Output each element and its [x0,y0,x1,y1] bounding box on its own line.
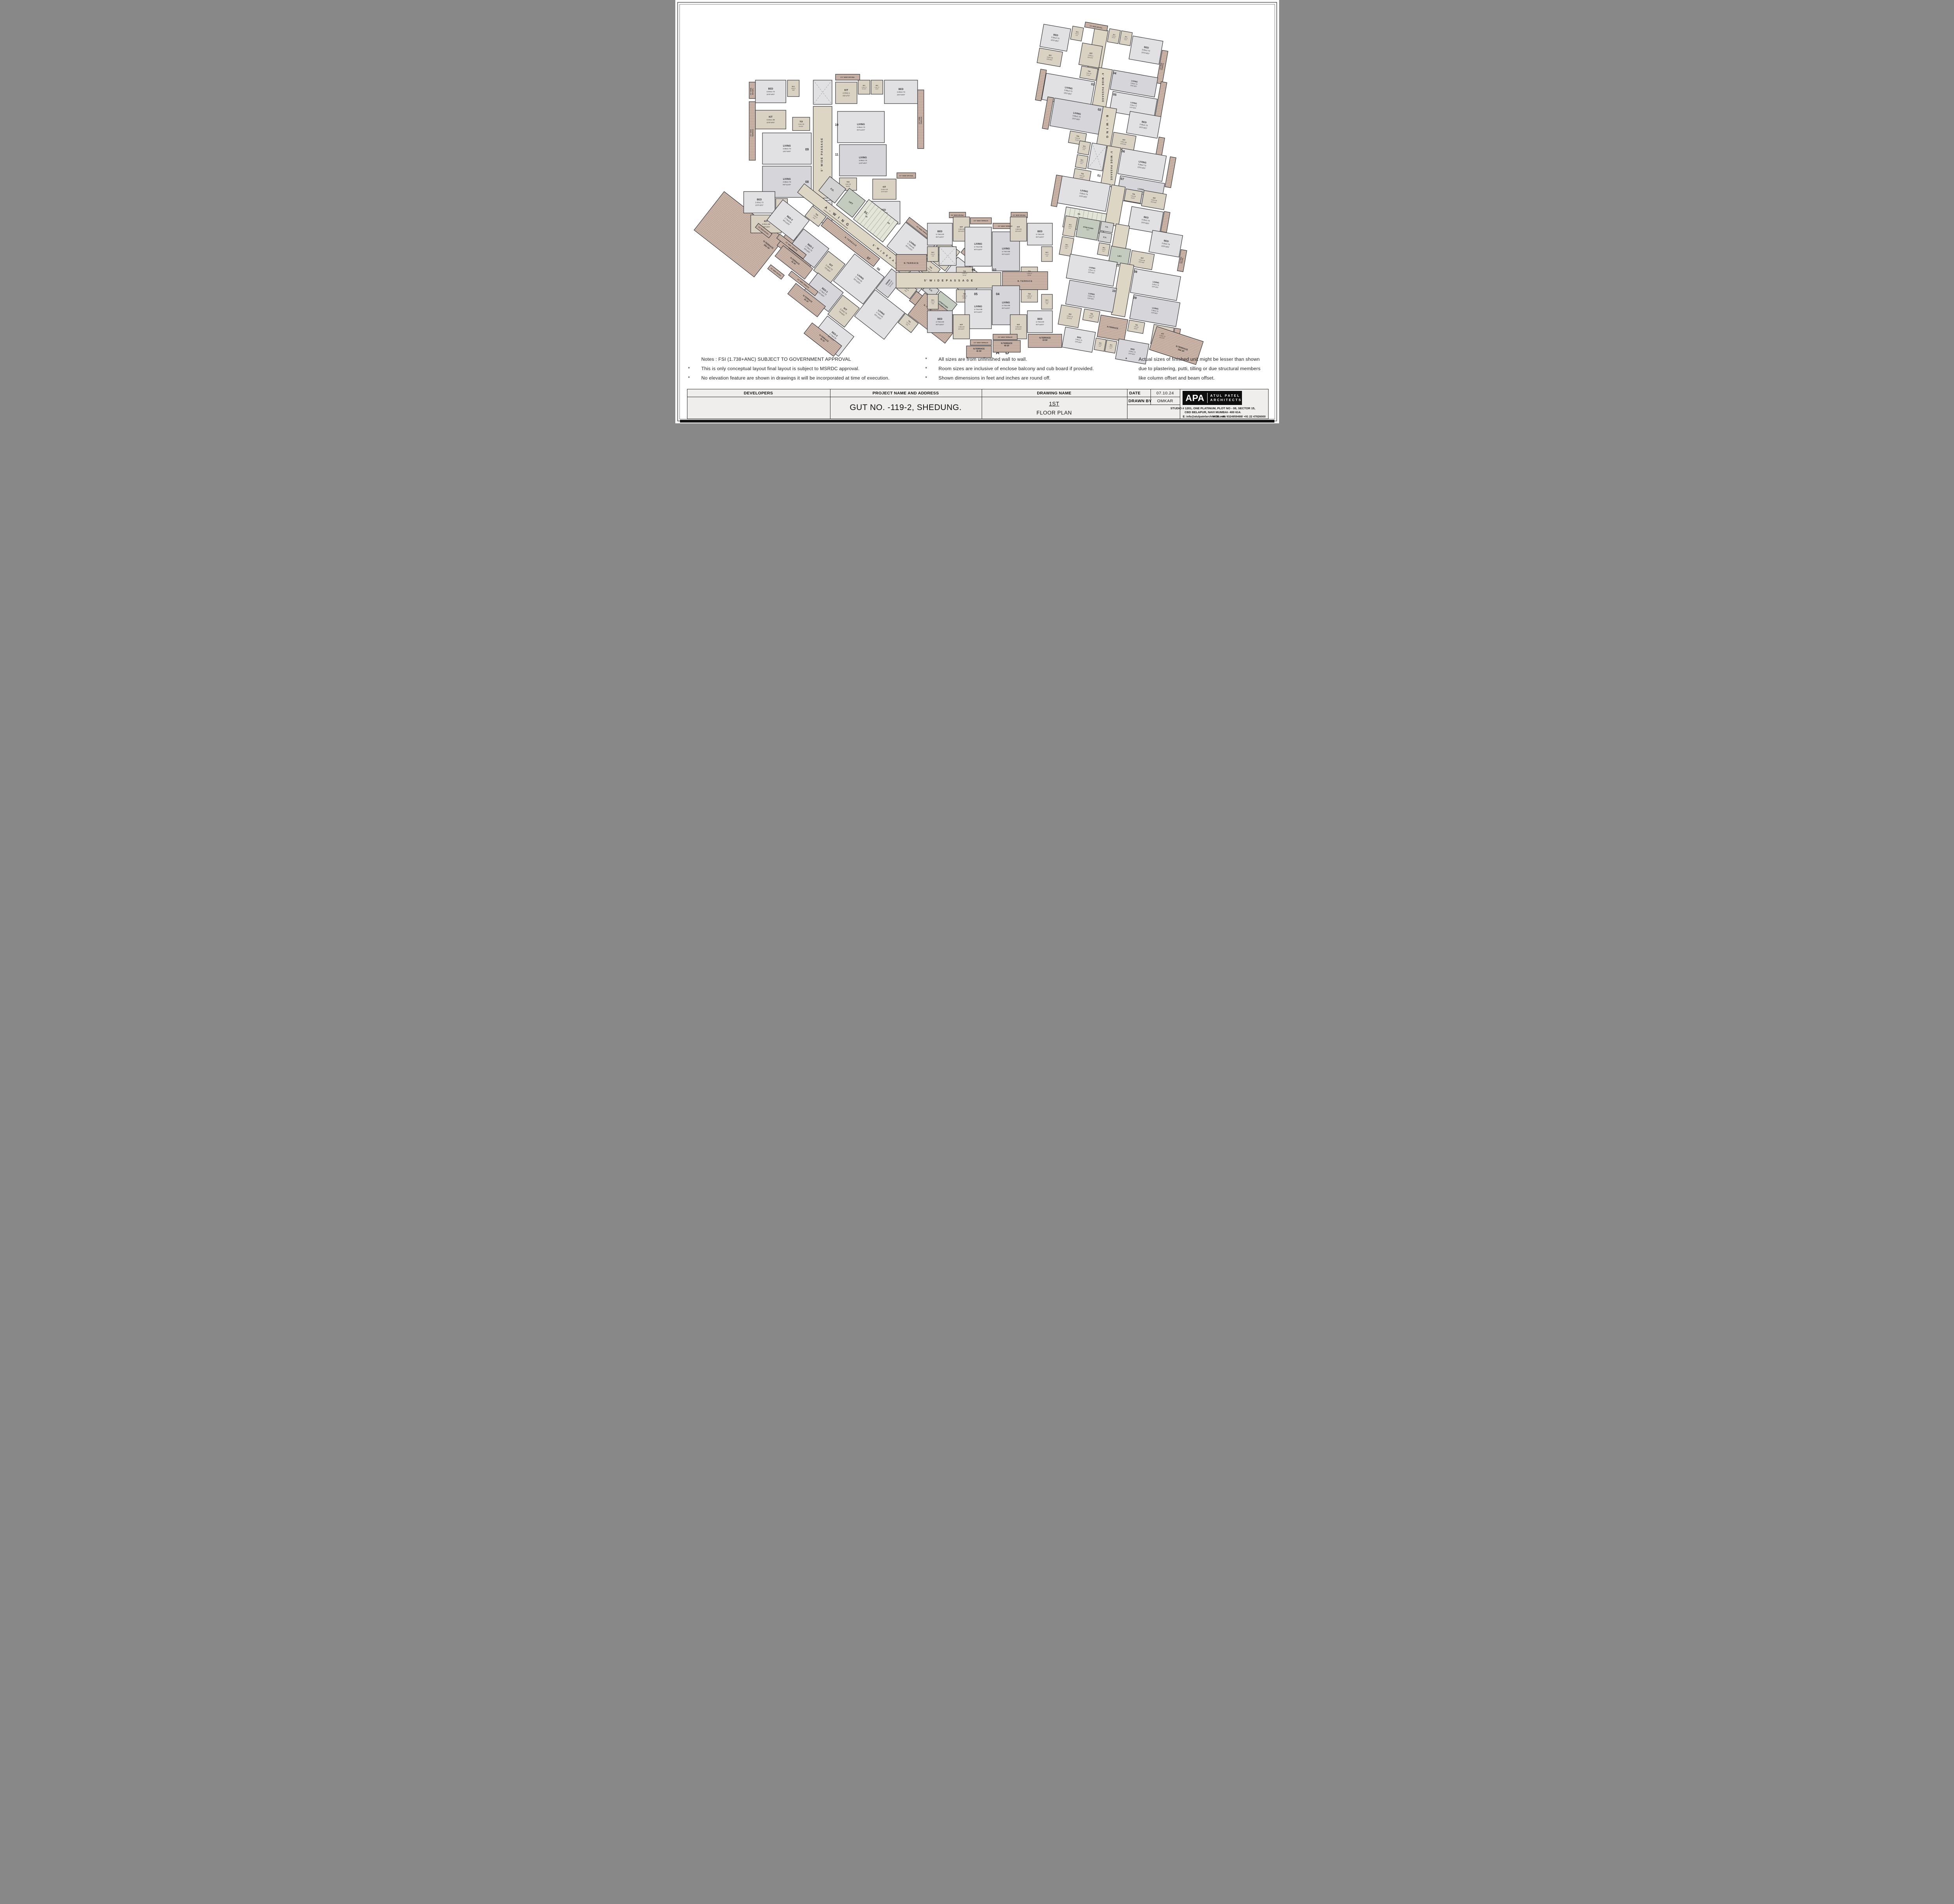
note-line: *All sizes are from unfinished wall to w… [925,356,1027,362]
plan-text: 11 [835,153,838,156]
title-block: DEVELOPERS PROJECT NAME AND ADDRESS DRAW… [687,389,1269,419]
drawing-name-line2: FLOOR PLAN [1036,410,1072,416]
plan-text: 3'3" WIDETERRACE [918,116,922,124]
plan-text: 5' W I D E P A S S A G E [924,279,973,282]
cluster-b-wing-6: LIVING3.95x2.7313'0"x9'0"LIVING3.95x2.73… [1054,254,1214,373]
drawnby-label: DRAWN BY [1129,399,1152,403]
note-line: *No elevation feature are shown in drawi… [688,375,890,381]
plan-text: 3'3" WIDE TERRACE [998,226,1013,227]
plan-text: 6' WIDE PASSAGE [1101,73,1104,102]
apa-logo: APA ATUL PATEL ARCHITECTS [1183,391,1242,405]
room-label: LIVING2.73x3.959'0"x13'0" [974,306,982,313]
plan-text: 3'3" WIDE DRY.BAL [840,76,855,78]
room [1075,217,1100,240]
note-line: like column offset and beam offset. [1126,375,1215,381]
apa-name-line1: ATUL PATEL [1210,394,1240,398]
plan-text: 3'3" WIDEDRY.BAL [750,88,753,95]
apa-logo-divider [1207,393,1208,403]
plan-text: 5' WIDE PASSAGE [1110,151,1112,181]
studio-address-line2: CBD BELAPUR, NAVI MUMBAI- 400 614. [1185,410,1241,414]
note-line: *Actual sizes of finished unit might be … [1126,356,1260,362]
room [680,420,1274,423]
room-label: LIVING3.95x2.7313'0"x9'0" [859,157,867,165]
plan-text: 3'3" WIDE TERRACE [998,337,1013,338]
plan-text: 02 [972,268,975,272]
plan-text: 01 [1097,174,1101,178]
plan-text: 05 [974,292,977,296]
room-label: LIVING2.73x3.959'0"x13'0" [974,243,982,251]
project-header: PROJECT NAME AND ADDRESS [873,391,939,396]
room-label: LIVING3.95x2.7313'0"x9'0" [1072,112,1081,121]
plan-text: 04 [996,292,999,296]
room-label: LIVING3.95x2.739'0"x13'0" [857,124,865,131]
date-value: 07.10.24 [1156,391,1174,396]
project-name: GUT NO. -119-2, SHEDUNG. [850,403,962,412]
plan-text: N.TERRACE [904,262,918,265]
plan-text: 03 [1091,82,1095,87]
room-label: LIVING3.95x2.739'0"x13'0" [782,178,791,186]
plan-text: 10 [835,123,838,127]
plan-text: 03 [993,268,996,272]
apa-name-line2: ARCHITECTS [1210,398,1242,402]
drawnby-value: OMKAR [1157,399,1173,403]
plan-text: 11 [1115,263,1119,267]
plan-text: N.TERRACE [1017,280,1032,283]
mobile-text: MOB: +91 9324959488/ +91 22 47826000 [1213,415,1265,418]
room-label: LIVING3.95x2.7313'0"x9'0" [782,145,791,153]
date-label: DATE [1129,391,1141,396]
room-label: LIVING2.73x3.959'0"x13'0" [1002,302,1010,310]
plan-text: 3'3" WIDE DRY.BAL [951,215,964,216]
plan-text: 3'3" WIDE TERRACE [973,220,988,222]
note-line: *Room sizes are inclusive of enclose bal… [925,366,1094,371]
note-line: due to plastering, putti, tilling or due… [1126,366,1261,371]
terrace-strip [1165,157,1176,188]
plan-text: 3'3" WIDE DRY.BAL [899,175,914,177]
room-label: LIVING3.95x2.7313'0"x9'0" [1063,86,1073,96]
drawing-name-line1: 1ST [1049,401,1059,407]
plan-text: 09 [805,148,809,151]
plan-text: 3'3" WIDE DRY.BAL [1013,215,1026,216]
plan-text: 3'3" WIDE TERRACE [973,342,988,344]
drawing-sheet: R O A DNBED3.00x2.7310'0"x9'0"W.C0.9x1.5… [675,0,1279,423]
room-label: LIVING3.95x2.7313'0"x9'0" [1079,190,1088,199]
note-line: *This is only conceptual layout final la… [688,366,860,371]
studio-address-line1: STUDIO # 1201, ONE PLATINUM, PLOT NO - 0… [1170,407,1255,410]
plan-text: 5' WIDE PASSAGE [821,137,823,171]
plan-text: 08 [805,180,809,184]
room-label: LIVING2.73x3.959'0"x13'0" [1002,248,1010,256]
apa-logo-text: APA [1183,393,1204,403]
note-line: Notes : FSI (1.738+ANC) SUBJECT TO GOVER… [688,356,851,362]
developers-header: DEVELOPERS [744,391,773,396]
drawing-header: DRAWING NAME [1037,391,1071,396]
plan-text: 3'3" WIDETERRACE [750,129,753,137]
plan-text: B - W I N G [1106,115,1109,139]
note-line: *Shown dimensions in feet and inches are… [925,375,1051,381]
room-label: LIVING3.95x2.7313'0"x9'0" [1137,161,1147,170]
